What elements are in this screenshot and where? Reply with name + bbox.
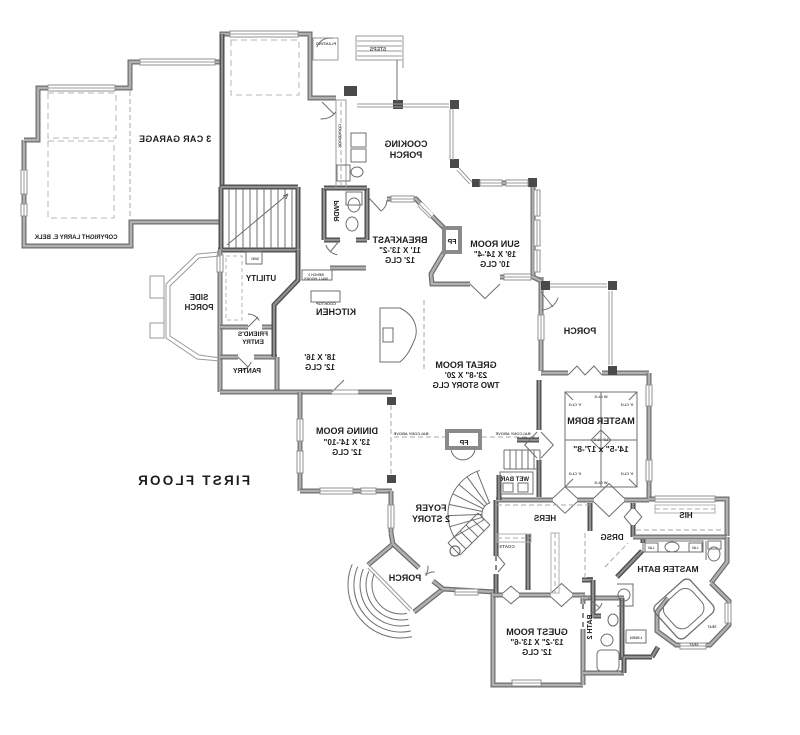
svg-text:14'-5" x 17'-8": 14'-5" x 17'-8" — [573, 444, 629, 454]
svg-text:SEAT: SEAT — [707, 625, 717, 629]
svg-text:9' CLG: 9' CLG — [621, 402, 634, 407]
svg-text:BATH 2: BATH 2 — [587, 615, 594, 640]
svg-text:12' CLG: 12' CLG — [305, 363, 335, 372]
svg-text:9' CLG: 9' CLG — [569, 471, 582, 476]
svg-text:PANTRY: PANTRY — [233, 368, 261, 375]
svg-text:DINING ROOM: DINING ROOM — [316, 426, 378, 436]
svg-text:GUEST ROOM: GUEST ROOM — [506, 627, 568, 637]
svg-text:DRSG: DRSG — [600, 533, 623, 542]
svg-text:LAV: LAV — [647, 546, 654, 550]
svg-text:COOKTOP: COOKTOP — [316, 301, 336, 306]
svg-text:23'-8" X 20': 23'-8" X 20' — [445, 371, 487, 380]
svg-text:13' CLG: 13' CLG — [594, 437, 609, 442]
svg-text:MASTER BDRM: MASTER BDRM — [567, 416, 635, 426]
svg-text:COOKBOOK: COOKBOOK — [337, 124, 342, 148]
svg-text:12' CLG: 12' CLG — [385, 256, 415, 265]
svg-text:SEAT: SEAT — [689, 643, 699, 647]
svg-text:18' X 16': 18' X 16' — [304, 353, 335, 362]
svg-text:PORCH: PORCH — [184, 303, 213, 312]
svg-text:LINEN: LINEN — [630, 635, 642, 640]
svg-text:W/D: W/D — [251, 256, 259, 261]
svg-text:BALCONY ABOVE: BALCONY ABOVE — [393, 431, 428, 436]
svg-text:13' X 14'-10": 13' X 14'-10" — [323, 438, 370, 447]
svg-text:STEPS: STEPS — [369, 47, 386, 53]
svg-text:LAV: LAV — [691, 546, 698, 550]
svg-text:BALCONY ABOVE: BALCONY ABOVE — [495, 431, 530, 436]
svg-text:10' CLG: 10' CLG — [480, 260, 510, 269]
svg-text:W CLG: W CLG — [594, 480, 607, 485]
svg-text:ENTRY: ENTRY — [241, 339, 263, 346]
svg-text:2 STORY: 2 STORY — [412, 514, 450, 524]
svg-text:PORCH: PORCH — [390, 150, 423, 160]
svg-text:3 CAR GARAGE: 3 CAR GARAGE — [139, 134, 212, 144]
svg-text:FP: FP — [447, 239, 456, 246]
svg-text:WET BAR: WET BAR — [500, 477, 529, 483]
svg-text:11' X 13'-2": 11' X 13'-2" — [379, 246, 421, 255]
svg-text:12' CLG: 12' CLG — [522, 648, 552, 657]
svg-text:19' X 14'-4": 19' X 14'-4" — [474, 250, 516, 259]
svg-text:HERS: HERS — [533, 514, 556, 523]
svg-text:SUN ROOM: SUN ROOM — [470, 239, 520, 249]
svg-text:WALL HOOKS: WALL HOOKS — [304, 277, 328, 281]
svg-text:COPYRIGHT LARRY E. BELK: COPYRIGHT LARRY E. BELK — [34, 235, 118, 241]
svg-text:9' CLG: 9' CLG — [569, 402, 582, 407]
svg-text:W CLG: W CLG — [594, 394, 607, 399]
svg-text:FRIEND'S: FRIEND'S — [237, 331, 268, 338]
svg-text:GREAT ROOM: GREAT ROOM — [435, 360, 496, 370]
svg-text:COOKING: COOKING — [384, 139, 427, 149]
svg-text:9' CLG: 9' CLG — [621, 471, 634, 476]
svg-text:PORCH: PORCH — [389, 573, 422, 583]
svg-text:UTILITY: UTILITY — [245, 274, 276, 283]
svg-text:FIRST FLOOR: FIRST FLOOR — [136, 473, 250, 488]
svg-text:PLANTING: PLANTING — [316, 41, 336, 46]
svg-text:FP: FP — [459, 440, 468, 447]
svg-text:PWDR: PWDR — [334, 200, 341, 221]
svg-text:TWO STORY CLG: TWO STORY CLG — [433, 381, 500, 390]
svg-text:MASTER BATH: MASTER BATH — [637, 564, 698, 574]
svg-text:KITCHEN: KITCHEN — [316, 307, 356, 317]
svg-text:PORCH: PORCH — [564, 326, 597, 336]
svg-text:SIDE: SIDE — [189, 293, 208, 302]
svg-text:HIS: HIS — [679, 511, 693, 520]
svg-text:FOYER: FOYER — [415, 503, 447, 513]
svg-text:BREAKFAST: BREAKFAST — [372, 235, 428, 245]
svg-text:COATS: COATS — [499, 544, 514, 549]
svg-text:13'-2" X 13'-6": 13'-2" X 13'-6" — [510, 638, 563, 647]
svg-text:12' CLG: 12' CLG — [332, 448, 362, 457]
